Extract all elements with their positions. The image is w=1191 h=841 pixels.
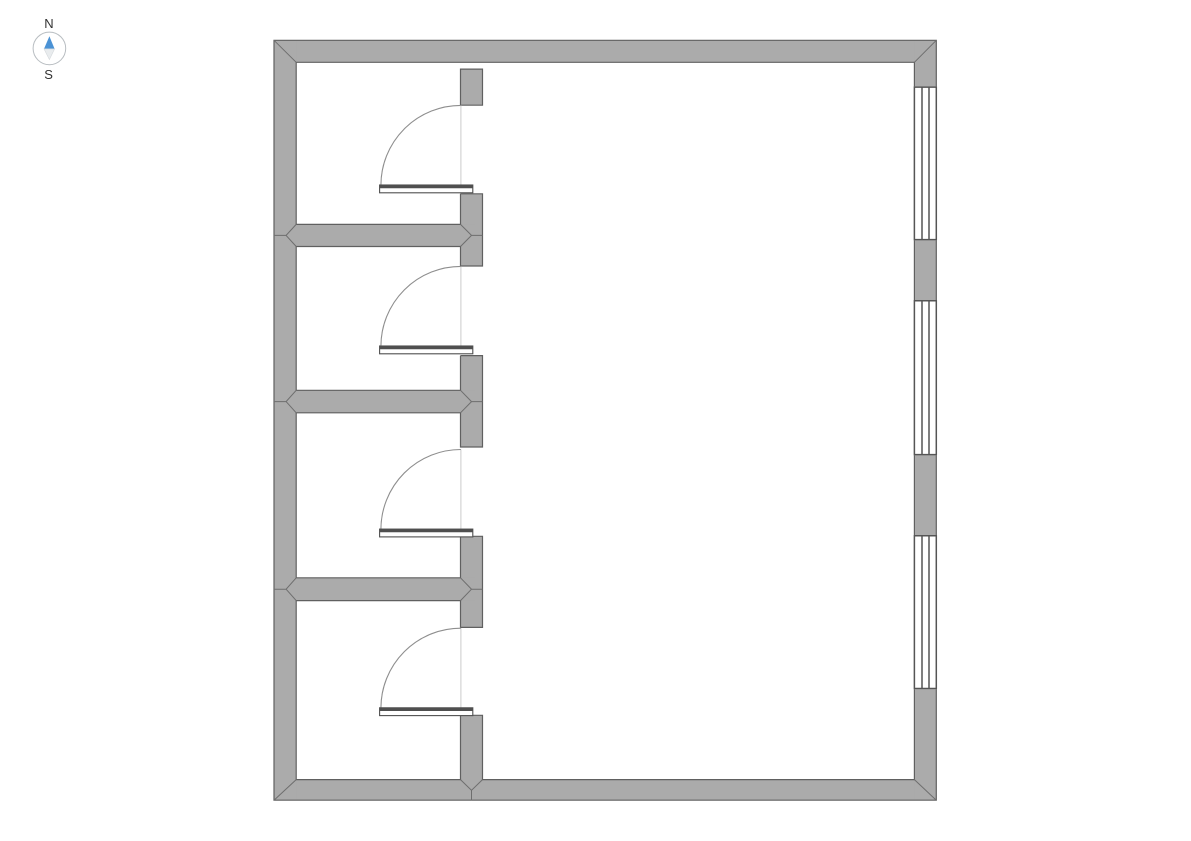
svg-text:N: N bbox=[44, 16, 53, 31]
svg-text:S: S bbox=[44, 67, 53, 82]
